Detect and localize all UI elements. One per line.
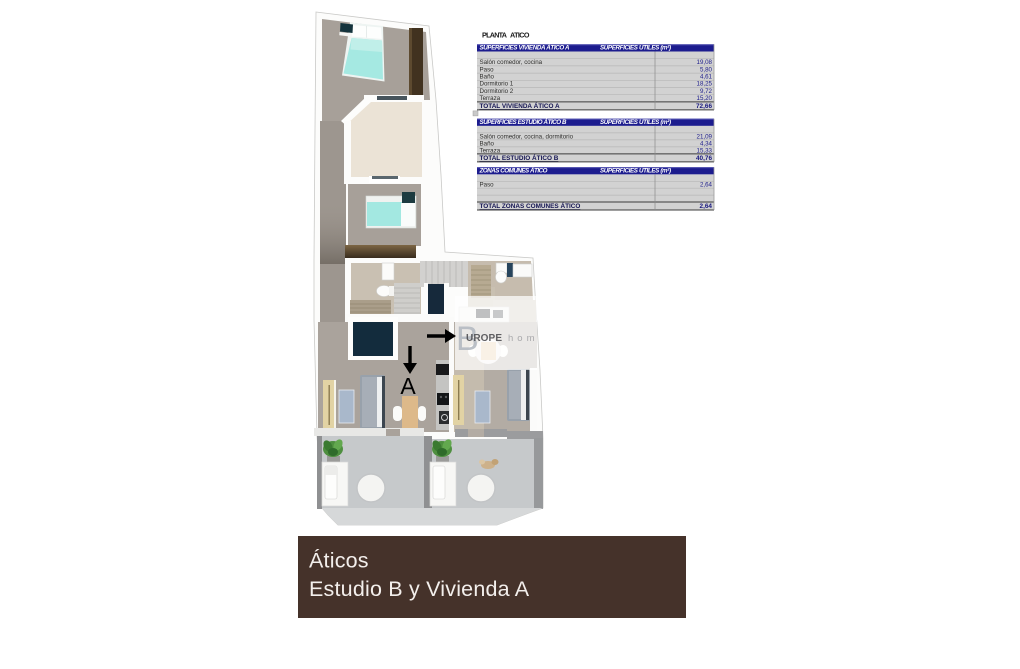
svg-text:Dormitorio 1: Dormitorio 1: [480, 81, 514, 88]
svg-text:Salón comedor, cocina: Salón comedor, cocina: [480, 59, 543, 66]
svg-text:5,80: 5,80: [700, 66, 713, 73]
svg-text:19,08: 19,08: [697, 59, 713, 66]
svg-text:hom: hom: [508, 333, 538, 344]
svg-text:2,64: 2,64: [700, 203, 713, 210]
svg-text:Salón comedor, cocina, dormito: Salón comedor, cocina, dormitorio: [480, 133, 574, 140]
svg-text:Baño: Baño: [480, 74, 495, 81]
svg-text:18,25: 18,25: [697, 81, 713, 88]
svg-text:Paso: Paso: [480, 66, 495, 73]
svg-text:Terraza: Terraza: [480, 95, 501, 102]
svg-text:21,09: 21,09: [697, 133, 713, 140]
svg-text:40,76: 40,76: [696, 155, 712, 162]
svg-text:15,33: 15,33: [697, 147, 713, 154]
svg-text:UROPE: UROPE: [466, 333, 502, 344]
svg-text:TOTAL ESTUDIO ÁTICO B: TOTAL ESTUDIO ÁTICO B: [480, 153, 559, 162]
svg-text:72,66: 72,66: [696, 103, 712, 110]
svg-text:4,34: 4,34: [700, 140, 713, 147]
svg-text:SUPERFICIES VIVIENDA ÁTICO A: SUPERFICIES VIVIENDA ÁTICO A: [480, 45, 571, 52]
svg-text:Paso: Paso: [480, 182, 495, 189]
svg-text:9,72: 9,72: [700, 88, 713, 95]
svg-text:SUPERFICIES ESTUDIO ÁTICO B: SUPERFICIES ESTUDIO ÁTICO B: [480, 119, 568, 126]
svg-text:2,64: 2,64: [700, 182, 713, 189]
svg-text:TOTAL VIVIENDA ÁTICO A: TOTAL VIVIENDA ÁTICO A: [480, 101, 561, 110]
svg-text:ZONAS COMUNES ÁTICO: ZONAS COMUNES ÁTICO: [479, 168, 548, 175]
svg-text:SUPERFICIES UTILES (m²): SUPERFICIES UTILES (m²): [600, 168, 671, 175]
svg-text:Dormitorio 2: Dormitorio 2: [480, 88, 514, 95]
svg-text:PLANTA: PLANTA: [482, 31, 507, 40]
svg-text:ATICO: ATICO: [510, 31, 530, 40]
svg-text:15,20: 15,20: [697, 95, 713, 102]
svg-text:TOTAL ZONAS COMUNES ÁTICO: TOTAL ZONAS COMUNES ÁTICO: [480, 201, 581, 210]
svg-text:4,61: 4,61: [700, 74, 713, 81]
svg-text:Áticos: Áticos: [309, 548, 369, 573]
svg-text:Estudio B y Vivienda A: Estudio B y Vivienda A: [309, 577, 530, 601]
svg-text:SUPERFICIES UTILES (m²): SUPERFICIES UTILES (m²): [600, 45, 671, 52]
svg-text:A: A: [400, 373, 416, 399]
svg-text:SUPERFICIES UTILES (m²): SUPERFICIES UTILES (m²): [600, 119, 671, 126]
svg-text:Baño: Baño: [480, 140, 495, 147]
svg-text:Terraza: Terraza: [480, 147, 501, 154]
